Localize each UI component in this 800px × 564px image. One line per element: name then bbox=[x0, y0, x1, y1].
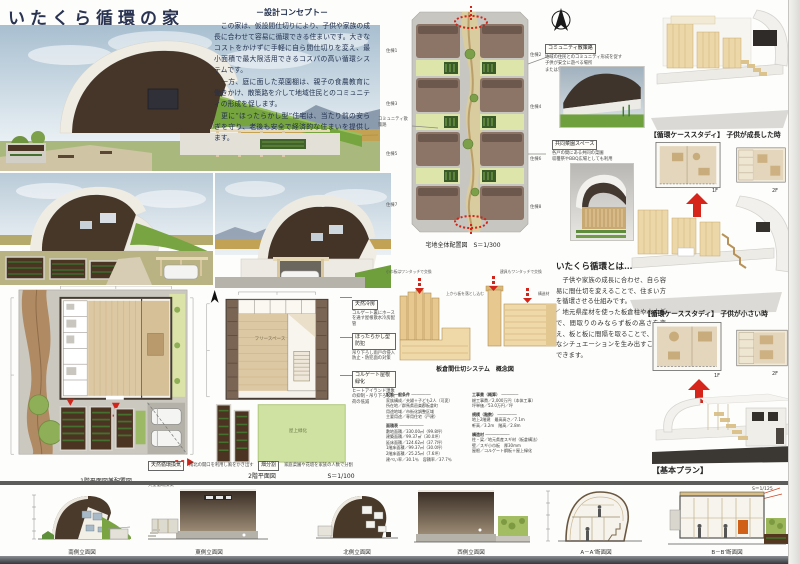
page-edge-right bbox=[788, 0, 800, 564]
itakura-heading: いたくら循環とは… bbox=[556, 260, 666, 272]
site-unit-label: 住棟1 bbox=[386, 48, 397, 54]
case1-2f-plan-thumb bbox=[736, 142, 786, 192]
spec-line: 主要用途／専用住宅（戸建） bbox=[386, 414, 470, 420]
case2-2f-plan-thumb bbox=[736, 325, 788, 375]
concept-paragraph: 更に“ほったらかし型”住宅は、当たり前の安らぎを守り、老後も安全で経済的な住まい… bbox=[214, 111, 370, 144]
design-concept: －設計コンセプト－ この家は、仮設間仕切りにより、子供や家族の成長に合わせて容易… bbox=[214, 7, 370, 145]
case1-1f-plan-thumb bbox=[655, 141, 721, 193]
cooling-callout-body: コルゲート裏にホースを通す屋根散水冷房配管 bbox=[352, 311, 396, 328]
street-rendering bbox=[215, 173, 391, 288]
field-callout-title: 畑分割 bbox=[258, 461, 279, 471]
cooling-callout: 天然冷房 コルゲート裏にホースを通す屋根散水冷房配管 bbox=[352, 290, 396, 328]
plan-scale-note: S＝1/100 bbox=[316, 471, 366, 480]
leader-line bbox=[340, 375, 352, 376]
case2-1f-plan-thumb bbox=[652, 320, 722, 377]
site-plan-caption: 宅地全体配置図 S＝1/300 bbox=[388, 240, 538, 249]
security-callout-body: 吊り下ろし雨戸の侵入防止・防犯面の対策 bbox=[352, 351, 396, 363]
green-roof-label: 屋上緑化 bbox=[268, 428, 328, 434]
partition-annotation: 上から板を落とし込む bbox=[446, 292, 502, 297]
section-aa-drawing bbox=[542, 485, 650, 553]
street-rendering-drawing bbox=[215, 173, 391, 288]
concept-heading: －設計コンセプト－ bbox=[214, 7, 370, 18]
floor-plan-1f-drawing bbox=[8, 286, 198, 474]
sheet-scale-note: S＝1/125 bbox=[752, 486, 773, 492]
cutaway-model-photo-1 bbox=[645, 2, 795, 134]
spec-line: 坪単価／53.0万円／坪 bbox=[472, 403, 560, 409]
spec-line: 軒高／3.2m 階高／2.8m bbox=[472, 423, 560, 429]
south-elevation-drawing bbox=[30, 487, 134, 551]
spec-column-2: 工事費（概算） ─────── 総工事費／2,000万円（本体工事） 坪単価／5… bbox=[472, 392, 560, 454]
garden-callout-title: 共同菜園スペース bbox=[552, 140, 597, 150]
east-elevation-drawing bbox=[146, 485, 272, 551]
section-bb-drawing bbox=[664, 484, 790, 554]
partition-annotation: 構造材 bbox=[538, 292, 562, 297]
spec-column-1: 設計一般条件 ──────── 家族構成／夫婦＋子ども2人（可変） 所在地／群馬… bbox=[386, 392, 470, 462]
garden-rendering-drawing bbox=[0, 173, 213, 285]
site-unit-label: 住棟6 bbox=[530, 156, 541, 162]
itakura-paragraph: 子供や家族の成長に合わせ、自ら容易に間仕切を変えることで、住まい方を循環させる仕… bbox=[556, 276, 666, 308]
page-edge-bottom bbox=[0, 556, 788, 564]
case-study-grown-label: 【循環ケーススタディ】 子供が成長した時 bbox=[650, 129, 800, 139]
leader-line bbox=[340, 337, 352, 338]
site-unit-label: 住棟7 bbox=[386, 202, 397, 208]
vent-callout-title: 天然循環換気 bbox=[148, 461, 184, 471]
garden-callout: 共同菜園スペース 各戸の間にある共同の菜園 収穫祭やBBQ広場としても利用 bbox=[552, 130, 650, 163]
site-unit-label: 住棟5 bbox=[386, 151, 397, 157]
site-unit-label: 住棟2 bbox=[530, 52, 541, 58]
field-callout: 畑分割 家庭菜園や花壇を家族の人数で分割 bbox=[258, 451, 354, 471]
basic-plan-label: 【基本プラン】 bbox=[652, 465, 762, 476]
section-bb-caption: B－B’断面図 bbox=[664, 548, 790, 556]
partition-diagram-drawing bbox=[388, 276, 560, 368]
cooling-callout-title: 天然冷房 bbox=[352, 300, 378, 310]
community-photo bbox=[558, 66, 646, 128]
greenroof-callout-body: ヒートアイランド現象の抑制・吊り下ろし負荷の低減 bbox=[352, 389, 396, 406]
presentation-board: いたくら循環の家 bbox=[0, 0, 800, 564]
concept-paragraph: 一方、庭に面した菜園棚は、親子の食農教育に働きかけ、散策路を介して地域住民とのコ… bbox=[214, 77, 370, 110]
site-plan-area: 住棟1 住棟3 住棟5 住棟7 住棟2 住棟4 住棟6 住棟8 コミュニティ散策… bbox=[378, 6, 550, 256]
concept-paragraph: この家は、仮設間仕切りにより、子供や家族の成長に合わせて容易に循環できる住まいで… bbox=[214, 21, 370, 76]
free-space-label: フリースペース bbox=[240, 336, 300, 342]
garden-rendering bbox=[0, 173, 213, 285]
community-callout-line: 地域の住民とのコミュニティ形成を促す bbox=[545, 55, 653, 61]
west-elevation-drawing bbox=[410, 486, 532, 552]
case2-2f-label: 2F bbox=[772, 371, 778, 377]
north-elevation-drawing bbox=[314, 488, 400, 550]
garden-callout-line: 各戸の間にある共同の菜園 bbox=[552, 151, 650, 157]
north-elevation-caption: 北側立面図 bbox=[314, 548, 400, 556]
security-callout: ほったらかし型防犯 吊り下ろし雨戸の侵入防止・防犯面の対策 bbox=[352, 330, 396, 362]
floor-plan-2f-drawing bbox=[200, 288, 352, 468]
site-unit-label: 住棟4 bbox=[530, 104, 541, 110]
site-unit-label: 住棟8 bbox=[530, 204, 541, 210]
greenroof-callout: コルゲート屋根緑化 ヒートアイランド現象の抑制・吊り下ろし負荷の低減 bbox=[352, 368, 396, 406]
partition-annotation: 小巾板はワンタッチで交換 bbox=[386, 270, 458, 275]
east-elevation-caption: 東側立面図 bbox=[146, 548, 272, 556]
leader-line bbox=[340, 297, 352, 298]
spec-line: 建ぺい率／30.1％ 容積率／37.7％ bbox=[386, 457, 470, 463]
west-elevation-caption: 西側立面図 bbox=[410, 548, 532, 556]
field-callout-body: 家庭菜園や花壇を家族の人数で分割 bbox=[284, 463, 353, 468]
partition-annotation: 建具もワンタッチで交換 bbox=[500, 270, 560, 275]
section-aa-caption: A－A’断面図 bbox=[542, 548, 650, 556]
spec-line: 屋根／コルゲート鋼板＋屋上緑化 bbox=[472, 448, 560, 454]
south-elevation-caption: 南側立面図 bbox=[30, 548, 134, 556]
site-path-label: コミュニティ散策路 bbox=[378, 116, 410, 128]
greenroof-callout-title: コルゲート屋根緑化 bbox=[352, 371, 396, 388]
case-study-small-label: 【循環ケーススタディ】 子供が小さい時 bbox=[644, 308, 796, 318]
cutaway-model-photo-3 bbox=[648, 392, 798, 468]
partition-caption: 板倉間仕切システム 概念図 bbox=[400, 364, 550, 373]
security-callout-title: ほったらかし型防犯 bbox=[352, 333, 396, 350]
case2-1f-label: 1F bbox=[714, 373, 720, 379]
site-unit-label: 住棟3 bbox=[386, 101, 397, 107]
community-callout-title: コミュニティ散策路 bbox=[545, 44, 596, 54]
